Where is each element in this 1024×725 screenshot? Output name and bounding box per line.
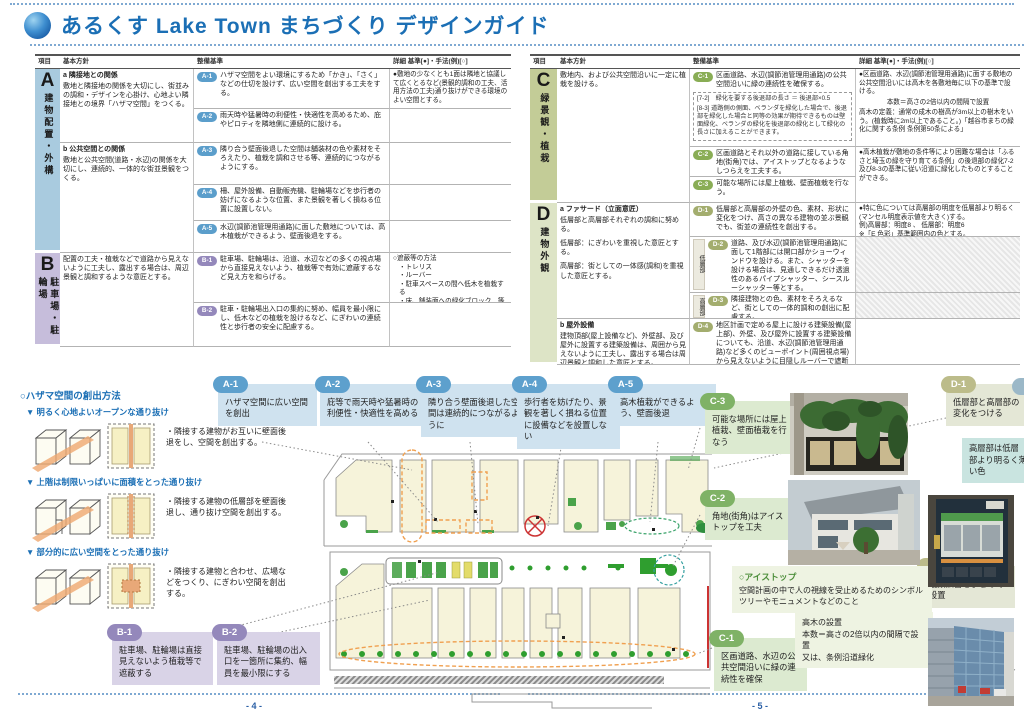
col-header-detail: 詳細 基準[●]・手法(例)[○] — [390, 56, 511, 69]
photo-green-wall — [790, 393, 908, 475]
detail-cell: ●特に色については高層部の明度を低層部より明るく(マンセル明度表示値を大きく)す… — [856, 203, 1020, 237]
hazama-diagram-open — [30, 420, 162, 472]
section-d-policy-b: b 屋外設備 建物頂部(屋上設備など)、外壁部、及び屋外に設置する建築設備は、周… — [557, 319, 690, 365]
standard-item: A-2雨天時や猛暑時の利便性・快適性を高めるため、庇やピロティを隣地側に連続的に… — [194, 109, 390, 143]
col-header-item: 項目 — [35, 56, 60, 69]
hazama-diagram-plaza — [30, 560, 162, 612]
detail-cell: ●区画道路、水辺(調節池管理用通路)に面する敷地の公共空間沿いには高木を各敷地毎… — [856, 69, 1020, 147]
callout-a1: A-1ハザマ空間に広い空間を創出 — [218, 384, 317, 426]
standard-item: B-2駐車・駐輪場出入口の集約に努め、幅員を最小限にし、低木などの植栽を設けるな… — [194, 303, 390, 347]
page-number-left: - 4 - — [246, 701, 262, 711]
site-plan — [322, 436, 714, 720]
photo-blue-building — [928, 618, 1014, 706]
hazama-heading: ▼ 上階は制限いっぱいに面積をとった通り抜け — [26, 476, 312, 488]
callout-c2: C-2角地(街角)はアイストップを工夫 — [705, 498, 794, 540]
callout-a2: A-2庇等で雨天時や猛暑時の利便性・快適性を高める — [320, 384, 425, 426]
callout-a3: A-3隣り合う壁面後退した空間は連続的につながるように — [421, 384, 526, 437]
detail-cell — [390, 143, 511, 185]
design-guide-page: あるくす Lake Town まちづくり デザインガイド 項目 基本方針 整備基… — [0, 0, 1024, 725]
detail-cell: ●高木植栽が敷地の条件等により困難な場合は「ふるさと埼玉の緑を守り育てる条例」の… — [856, 147, 1020, 203]
callout-badge-cutoff — [1012, 378, 1024, 395]
section-b-sidebar: B 駐車場・駐輪場 — [35, 253, 60, 347]
section-d-policy-a: a ファサード（立面意匠） 低層部と高層部それぞれの調和に努める。 低層部：にぎ… — [557, 203, 690, 319]
section-a-policy-a: a 隣接地との関係 敷地と隣接地の関係を大切にし、街並みの調和・デザインを心掛け… — [60, 69, 194, 143]
hazama-diagram-upper — [30, 490, 162, 542]
callout-c3: C-3可能な場所には屋上植栽、壁面植栽を行なう — [705, 401, 798, 454]
col-header-detail: 詳細 基準[●]・手法(例)[○] — [856, 56, 1020, 69]
section-d-sidebar: D 建物外観 — [530, 203, 557, 365]
photo-corner-building — [788, 480, 920, 565]
detail-cell: ●敷地の少なくとも1面は隣地と協議して広くとるなど(景観的調和の工夫、活用方法の… — [390, 69, 511, 109]
section-c-sidebar: C 緑景観・植栽 — [530, 69, 557, 203]
table-left: 項目 基本方針 整備基準 詳細 基準[●]・手法(例)[○] A 建物配置・外構… — [35, 54, 511, 347]
standard-item: D-1低層部と高層部の外壁の色、素材、形状に変化をつけ、高さの異なる建物の並ぶ景… — [690, 203, 856, 237]
high-rise-tag: 高層部 — [693, 295, 705, 318]
detail-cell — [390, 109, 511, 143]
section-a-policy-b: b 公共空間との関係 敷地と公共空間(道路・水辺)の関係を大切にし、連続的、一体… — [60, 143, 194, 253]
takagi-note: 高木の設置 本数＝高さの2倍以内の間隔で設置 又は、条例沿道緑化 — [795, 612, 933, 668]
detail-cell: ○遮蔽等の方法 ・トレリス ・ルーバー ・駐車スペースの間へ低木を植栽する ・床… — [390, 253, 511, 303]
top-border-line — [10, 3, 1014, 5]
callout-c1: C-1区画道路、水辺の公共空間沿いに緑の連続性を確保 — [714, 638, 807, 691]
detail-cell — [390, 185, 511, 221]
low-rise-tag: 低層部 — [693, 239, 705, 290]
hazama-caption: ・隣接する建物の低層部を壁面後退し、通り抜け空間を創出する。 — [166, 496, 286, 518]
col-header-policy: 基本方針 — [60, 56, 194, 69]
standard-item: A-4柵、屋外設備、自動販売機、駐輪場などを歩行者の妨げになるような位置、また景… — [194, 185, 390, 221]
callout-a4: A-4歩行者を妨げたり、景観を著しく損ねる位置に設備などを設置しない — [517, 384, 620, 449]
standard-item: A-1ハザマ空間をよい環境にするため「かき」、「さく」などの仕切を設けず、広い空… — [194, 69, 390, 109]
table-right: 項目 基本方針 整備基準 詳細 基準[●]・手法(例)[○] C 緑景観・植栽 … — [530, 54, 1020, 365]
callout-d1-sub: 高層部は低層部より明るく薄い色 — [962, 438, 1024, 483]
header: あるくす Lake Town まちづくり デザインガイド — [24, 10, 549, 40]
callout-b2: B-2駐車場、駐輪場の出入口を一箇所に集約、幅員を最小限にする — [217, 632, 320, 685]
standard-item: C-2区画道路とそれ以外の道路に接している角地(街角)では、アイストップとなるよ… — [690, 147, 856, 177]
eyestop-note: ○アイストップ 空間計画の中で人の視線を受止めるためのシンボルツリーやモニュメン… — [732, 566, 932, 613]
section-c-policy: 敷地内、および公共空間沿いに一定に植栽を設ける。 — [557, 69, 690, 203]
col-header-policy: 基本方針 — [557, 56, 690, 69]
standard-item: B-1駐車場、駐輪場は、沿道、水辺などの多くの視点場から直接見えないよう、植栽等… — [194, 253, 390, 303]
hazama-caption: ・隣接する建物と合わせ、広場などをつくり、にぎわい空間を創出する。 — [166, 566, 286, 600]
standard-item: 低層部 D-2道路、及び水辺(調節池管理用通路)に面して1階部には開口部かショー… — [690, 237, 856, 293]
standard-item: A-5水辺(調節池管理用通路)に面した敷地については、高木植栽ができるよう、壁面… — [194, 221, 390, 253]
detail-cell-hatched — [856, 237, 1020, 293]
col-header-item: 項目 — [530, 56, 557, 69]
standard-item: C-3可能な場所には屋上植栽、壁面植栽を行なう。 — [690, 177, 856, 203]
standard-item: D-4地区計画で定める屋上に設ける建築設備(屋上部)、外壁、及び屋外に設置する建… — [690, 319, 856, 365]
page-number-right: - 5 - — [752, 701, 768, 711]
callout-b1: B-1駐車場、駐輪場は直接見えないよう植栽等で遮蔽する — [112, 632, 213, 685]
globe-icon — [24, 12, 51, 39]
page-title: あるくす Lake Town まちづくり デザインガイド — [61, 10, 549, 40]
col-header-standard: 整備基準 — [690, 56, 856, 69]
standard-item: A-3隣り合う壁面後退した空間は舗装材の色や素材をそろえたり、植栽を調和させる等… — [194, 143, 390, 185]
standard-item: C-1区画道路、水辺(調節池管理用通路)の公共空間沿いに緑の連続性を確保する。 … — [690, 69, 856, 147]
detail-cell — [390, 303, 511, 347]
section-a-sidebar: A 建物配置・外構 — [35, 69, 60, 253]
detail-cell-hatched — [856, 293, 1020, 319]
section-b-policy: 配置の工夫・植栽などで道路から見えないように工夫し、露出する場合は、周辺景観と調… — [60, 253, 194, 347]
col-header-standard: 整備基準 — [194, 56, 390, 69]
photo-sign-board — [928, 495, 1014, 587]
c1-note: [7-2] 緑化を要する後退部の長さ ＝ 後退部×0.5 [8-3] 道路側の側… — [693, 92, 852, 140]
hazama-caption: ・隣接する建物がお互いに壁面後退をし、空間を創出する。 — [166, 426, 286, 448]
standard-item: 高層部 D-3隣接建物との色、素材をそろえるなど、街としての一体的調和の創出に配… — [690, 293, 856, 319]
header-underline — [30, 44, 1024, 46]
hazama-heading: ▼ 部分的に広い空間をとった通り抜け — [26, 546, 312, 558]
detail-cell — [390, 221, 511, 253]
detail-cell — [856, 319, 1020, 365]
